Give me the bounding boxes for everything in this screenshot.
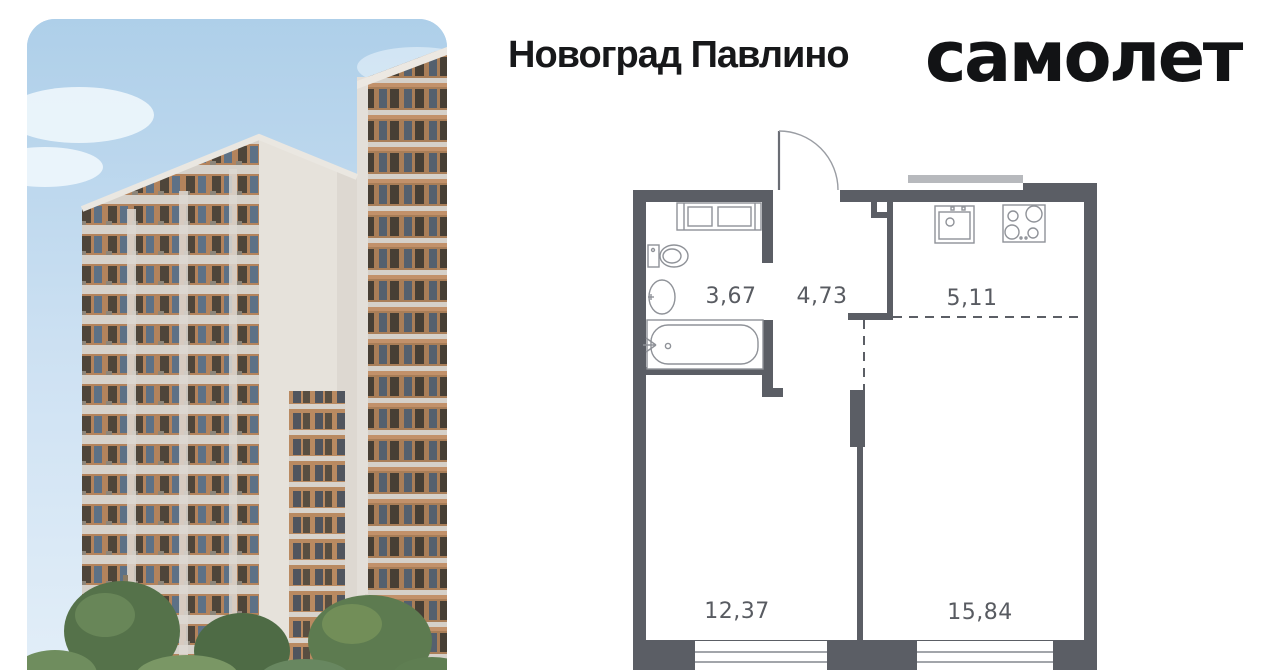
washing-machine-icon [677, 203, 761, 230]
washbasin-icon [648, 280, 675, 314]
right-tower [357, 47, 447, 670]
entrance-door [779, 131, 838, 190]
brand-logo: самолет [925, 22, 1225, 92]
bathtub-icon [643, 320, 763, 369]
exterior-ledge [908, 175, 1023, 183]
dashed-divider [864, 317, 1084, 390]
room-area-kitchen: 5,11 [947, 286, 998, 311]
floorplan: 3,67 4,73 5,11 12,37 15,84 [600, 110, 1120, 670]
building-photo-render [27, 19, 447, 670]
room-area-living-room: 15,84 [947, 600, 1012, 625]
room-area-hallway: 4,73 [797, 284, 848, 309]
window [695, 641, 827, 670]
building-photo [27, 19, 447, 670]
toilet-icon [648, 245, 688, 267]
kitchen-sink-icon [935, 206, 974, 243]
stove-icon [1003, 205, 1045, 242]
window [917, 641, 1053, 670]
room-area-bedroom: 12,37 [704, 599, 769, 624]
walls [633, 175, 1097, 670]
floorplan-drawing: 3,67 4,73 5,11 12,37 15,84 [600, 110, 1120, 670]
project-title: Новоград Павлино [508, 36, 928, 74]
room-area-bathroom: 3,67 [706, 284, 757, 309]
listing-card: Новоград Павлино самолет [0, 0, 1280, 670]
